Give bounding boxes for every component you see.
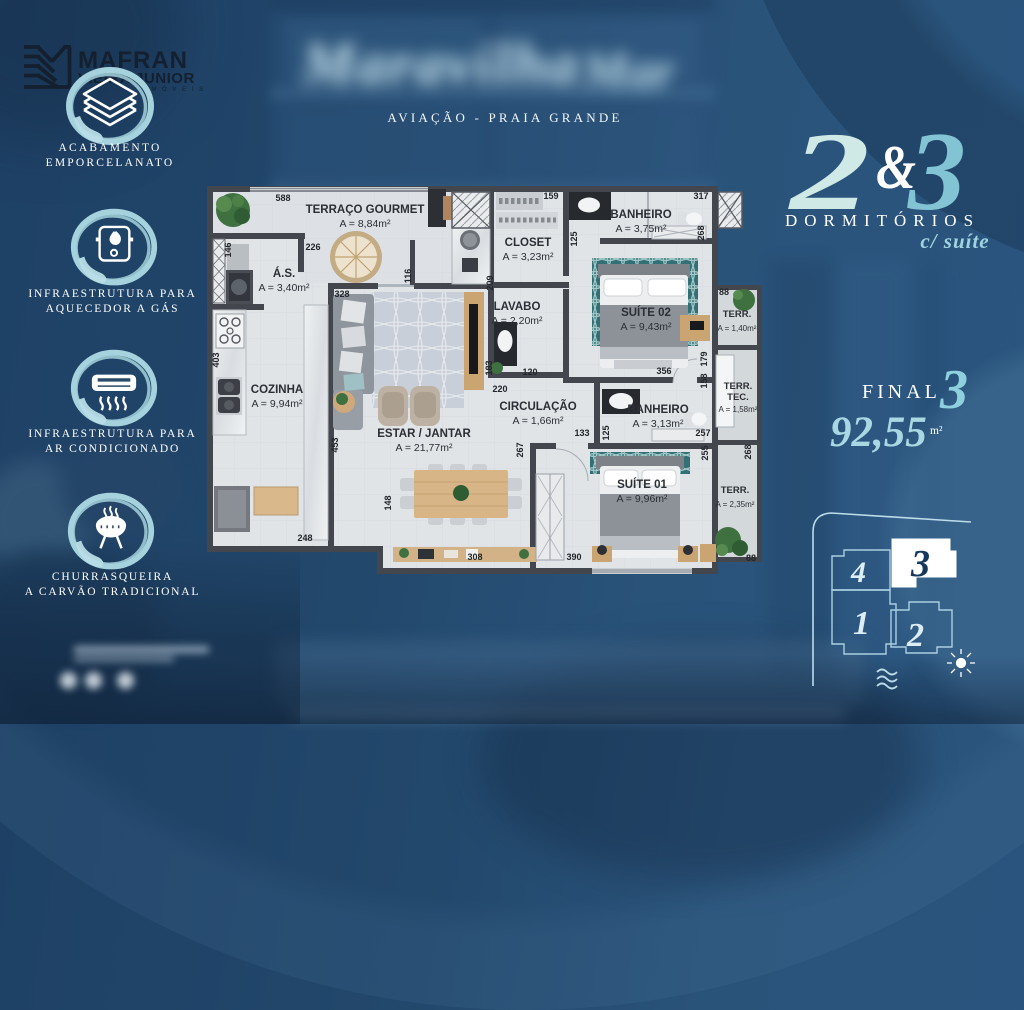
svg-text:A = 2,35m²: A = 2,35m² [716, 500, 755, 509]
svg-text:A = 9,96m²: A = 9,96m² [616, 493, 668, 505]
svg-text:SUÍTE 01: SUÍTE 01 [617, 478, 667, 491]
svg-text:Maravilha: Maravilha [301, 31, 580, 97]
svg-text:A = 21,77m²: A = 21,77m² [396, 442, 453, 454]
svg-text:ESTAR / JANTAR: ESTAR / JANTAR [377, 428, 471, 440]
svg-text:209: 209 [485, 275, 495, 290]
svg-text:BANHEIRO: BANHEIRO [610, 209, 671, 221]
svg-text:146: 146 [223, 242, 233, 257]
svg-text:SUÍTE 02: SUÍTE 02 [621, 306, 671, 319]
svg-text:A = 3,23m²: A = 3,23m² [502, 251, 554, 263]
svg-text:268: 268 [743, 444, 753, 459]
svg-text:390: 390 [566, 552, 581, 562]
svg-text:125: 125 [569, 231, 579, 246]
svg-text:Á.S.: Á.S. [273, 267, 295, 280]
svg-text:255: 255 [700, 445, 710, 460]
svg-text:m²: m² [930, 425, 943, 437]
svg-text:TERR.: TERR. [721, 485, 750, 496]
svg-text:3: 3 [910, 543, 930, 585]
svg-text:A = 3,75m²: A = 3,75m² [615, 223, 667, 235]
svg-text:220: 220 [492, 384, 507, 394]
svg-text:116: 116 [403, 269, 413, 284]
svg-text:BANHEIRO: BANHEIRO [627, 404, 688, 416]
svg-text:453: 453 [330, 437, 340, 452]
svg-text:TEC.: TEC. [727, 392, 749, 403]
svg-text:4: 4 [850, 556, 866, 589]
svg-text:Mar: Mar [581, 43, 675, 100]
svg-text:88: 88 [719, 287, 729, 297]
svg-text:317: 317 [693, 191, 708, 201]
svg-text:588: 588 [275, 193, 290, 203]
svg-text:133: 133 [574, 428, 589, 438]
svg-text:A = 2,20m²: A = 2,20m² [491, 315, 543, 327]
svg-text:248: 248 [297, 533, 312, 543]
svg-text:179: 179 [699, 351, 709, 366]
svg-text:159: 159 [543, 191, 558, 201]
svg-text:A = 9,43m²: A = 9,43m² [620, 321, 672, 333]
svg-text:CLOSET: CLOSET [505, 237, 552, 249]
svg-text:120: 120 [522, 367, 537, 377]
svg-text:125: 125 [601, 425, 611, 440]
svg-text:328: 328 [334, 289, 349, 299]
svg-text:A = 9,94m²: A = 9,94m² [251, 398, 303, 410]
svg-text:183: 183 [484, 360, 494, 375]
svg-text:403: 403 [211, 352, 221, 367]
svg-text:88: 88 [746, 553, 756, 563]
svg-text:A = 8,84m²: A = 8,84m² [339, 218, 391, 230]
svg-text:TERR.: TERR. [723, 309, 752, 320]
svg-text:2: 2 [906, 617, 924, 654]
svg-text:267: 267 [515, 442, 525, 457]
svg-text:A = 1,58m²: A = 1,58m² [719, 405, 758, 414]
svg-text:356: 356 [656, 366, 671, 376]
svg-text:A = 1,66m²: A = 1,66m² [512, 415, 564, 427]
svg-text:TERR.: TERR. [724, 381, 753, 392]
svg-text:308: 308 [467, 552, 482, 562]
svg-text:A = 3,40m²: A = 3,40m² [258, 282, 310, 294]
svg-text:COZINHA: COZINHA [251, 384, 303, 396]
svg-text:A = 3,13m²: A = 3,13m² [632, 418, 684, 430]
svg-text:257: 257 [695, 428, 710, 438]
svg-text:226: 226 [305, 242, 320, 252]
svg-text:158: 158 [699, 373, 709, 388]
svg-text:A = 1,40m²: A = 1,40m² [718, 324, 757, 333]
svg-text:92,55: 92,55 [830, 409, 927, 456]
svg-text:CIRCULAÇÃO: CIRCULAÇÃO [499, 400, 576, 413]
svg-text:1: 1 [853, 605, 870, 642]
svg-text:148: 148 [383, 495, 393, 510]
svg-text:TERRAÇO GOURMET: TERRAÇO GOURMET [306, 204, 425, 216]
svg-text:LAVABO: LAVABO [494, 301, 541, 313]
svg-text:268: 268 [696, 225, 706, 240]
